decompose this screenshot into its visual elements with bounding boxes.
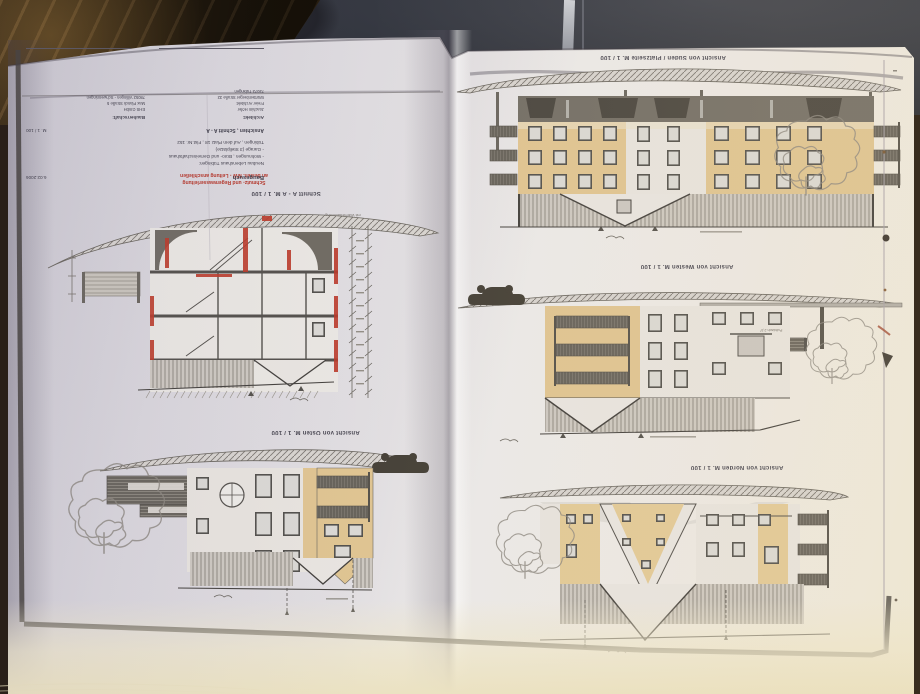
section-a-a bbox=[48, 214, 438, 401]
label-ansicht-norden: Ansicht von Norden M. 1 / 100 bbox=[672, 464, 802, 470]
sheet-name: Ansichten , Schnitt A - A bbox=[206, 127, 264, 133]
architect-block: Architekt: Joachim Höfer Freier Architek… bbox=[145, 88, 264, 120]
photo-of-architectural-plans: Ansicht von Süden / Platzseite M. 1 / 10… bbox=[0, 0, 920, 694]
label-ansicht-sueden: Ansicht von Süden / Platzseite M. 1 / 10… bbox=[588, 54, 738, 60]
label-schnitt: Schnitt A - A M. 1 / 100 bbox=[232, 190, 340, 196]
label-ansicht-westen: Ansicht von Westen M. 1 / 100 bbox=[612, 263, 762, 269]
sheet-scale: M. 1 / 100 bbox=[26, 128, 46, 133]
title-block-rules bbox=[26, 48, 264, 49]
elevation-sued bbox=[457, 69, 901, 239]
project-description: Neubau Lebenshaus Tübingen: - Wohnungen … bbox=[26, 139, 264, 167]
label-pultdach: Pultdach 2,5° bbox=[740, 328, 802, 332]
project-stage: Baugesuch bbox=[233, 174, 264, 180]
client-block: Bauherrschaft: EHS GmbH Max Planck Straß… bbox=[26, 88, 145, 120]
elevation-ost bbox=[69, 450, 429, 615]
plan-date: 6.02.2006 bbox=[26, 175, 46, 180]
title-block: Baugesuch 6.02.2006 Neubau Lebenshaus Tü… bbox=[26, 48, 264, 180]
label-ansicht-osten: Ansicht von Osten M. 1 / 100 bbox=[258, 429, 373, 435]
under-page-edge bbox=[8, 600, 914, 694]
elevation-west bbox=[458, 285, 902, 442]
label-daemmung: mit Wärmedämmung bbox=[312, 213, 374, 217]
